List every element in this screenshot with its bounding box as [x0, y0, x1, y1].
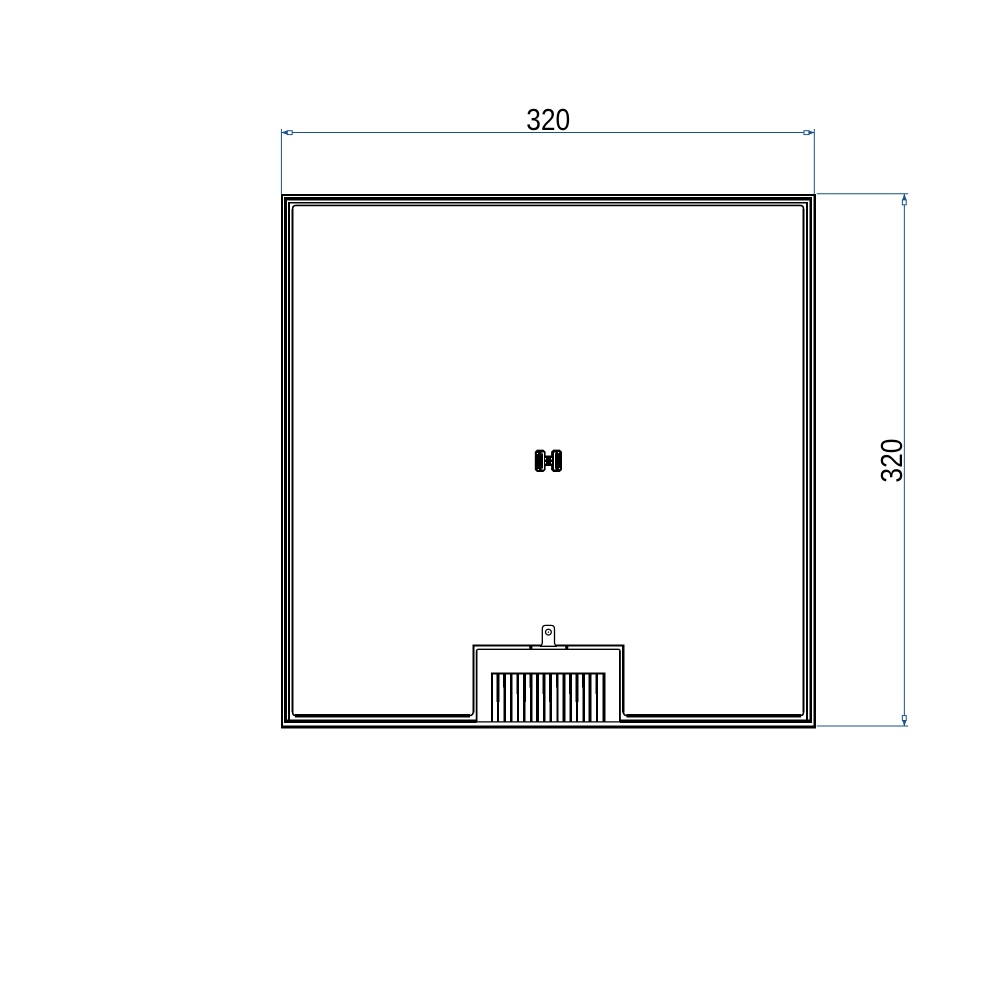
- svg-text:320: 320: [526, 103, 570, 137]
- svg-text:320: 320: [875, 439, 909, 483]
